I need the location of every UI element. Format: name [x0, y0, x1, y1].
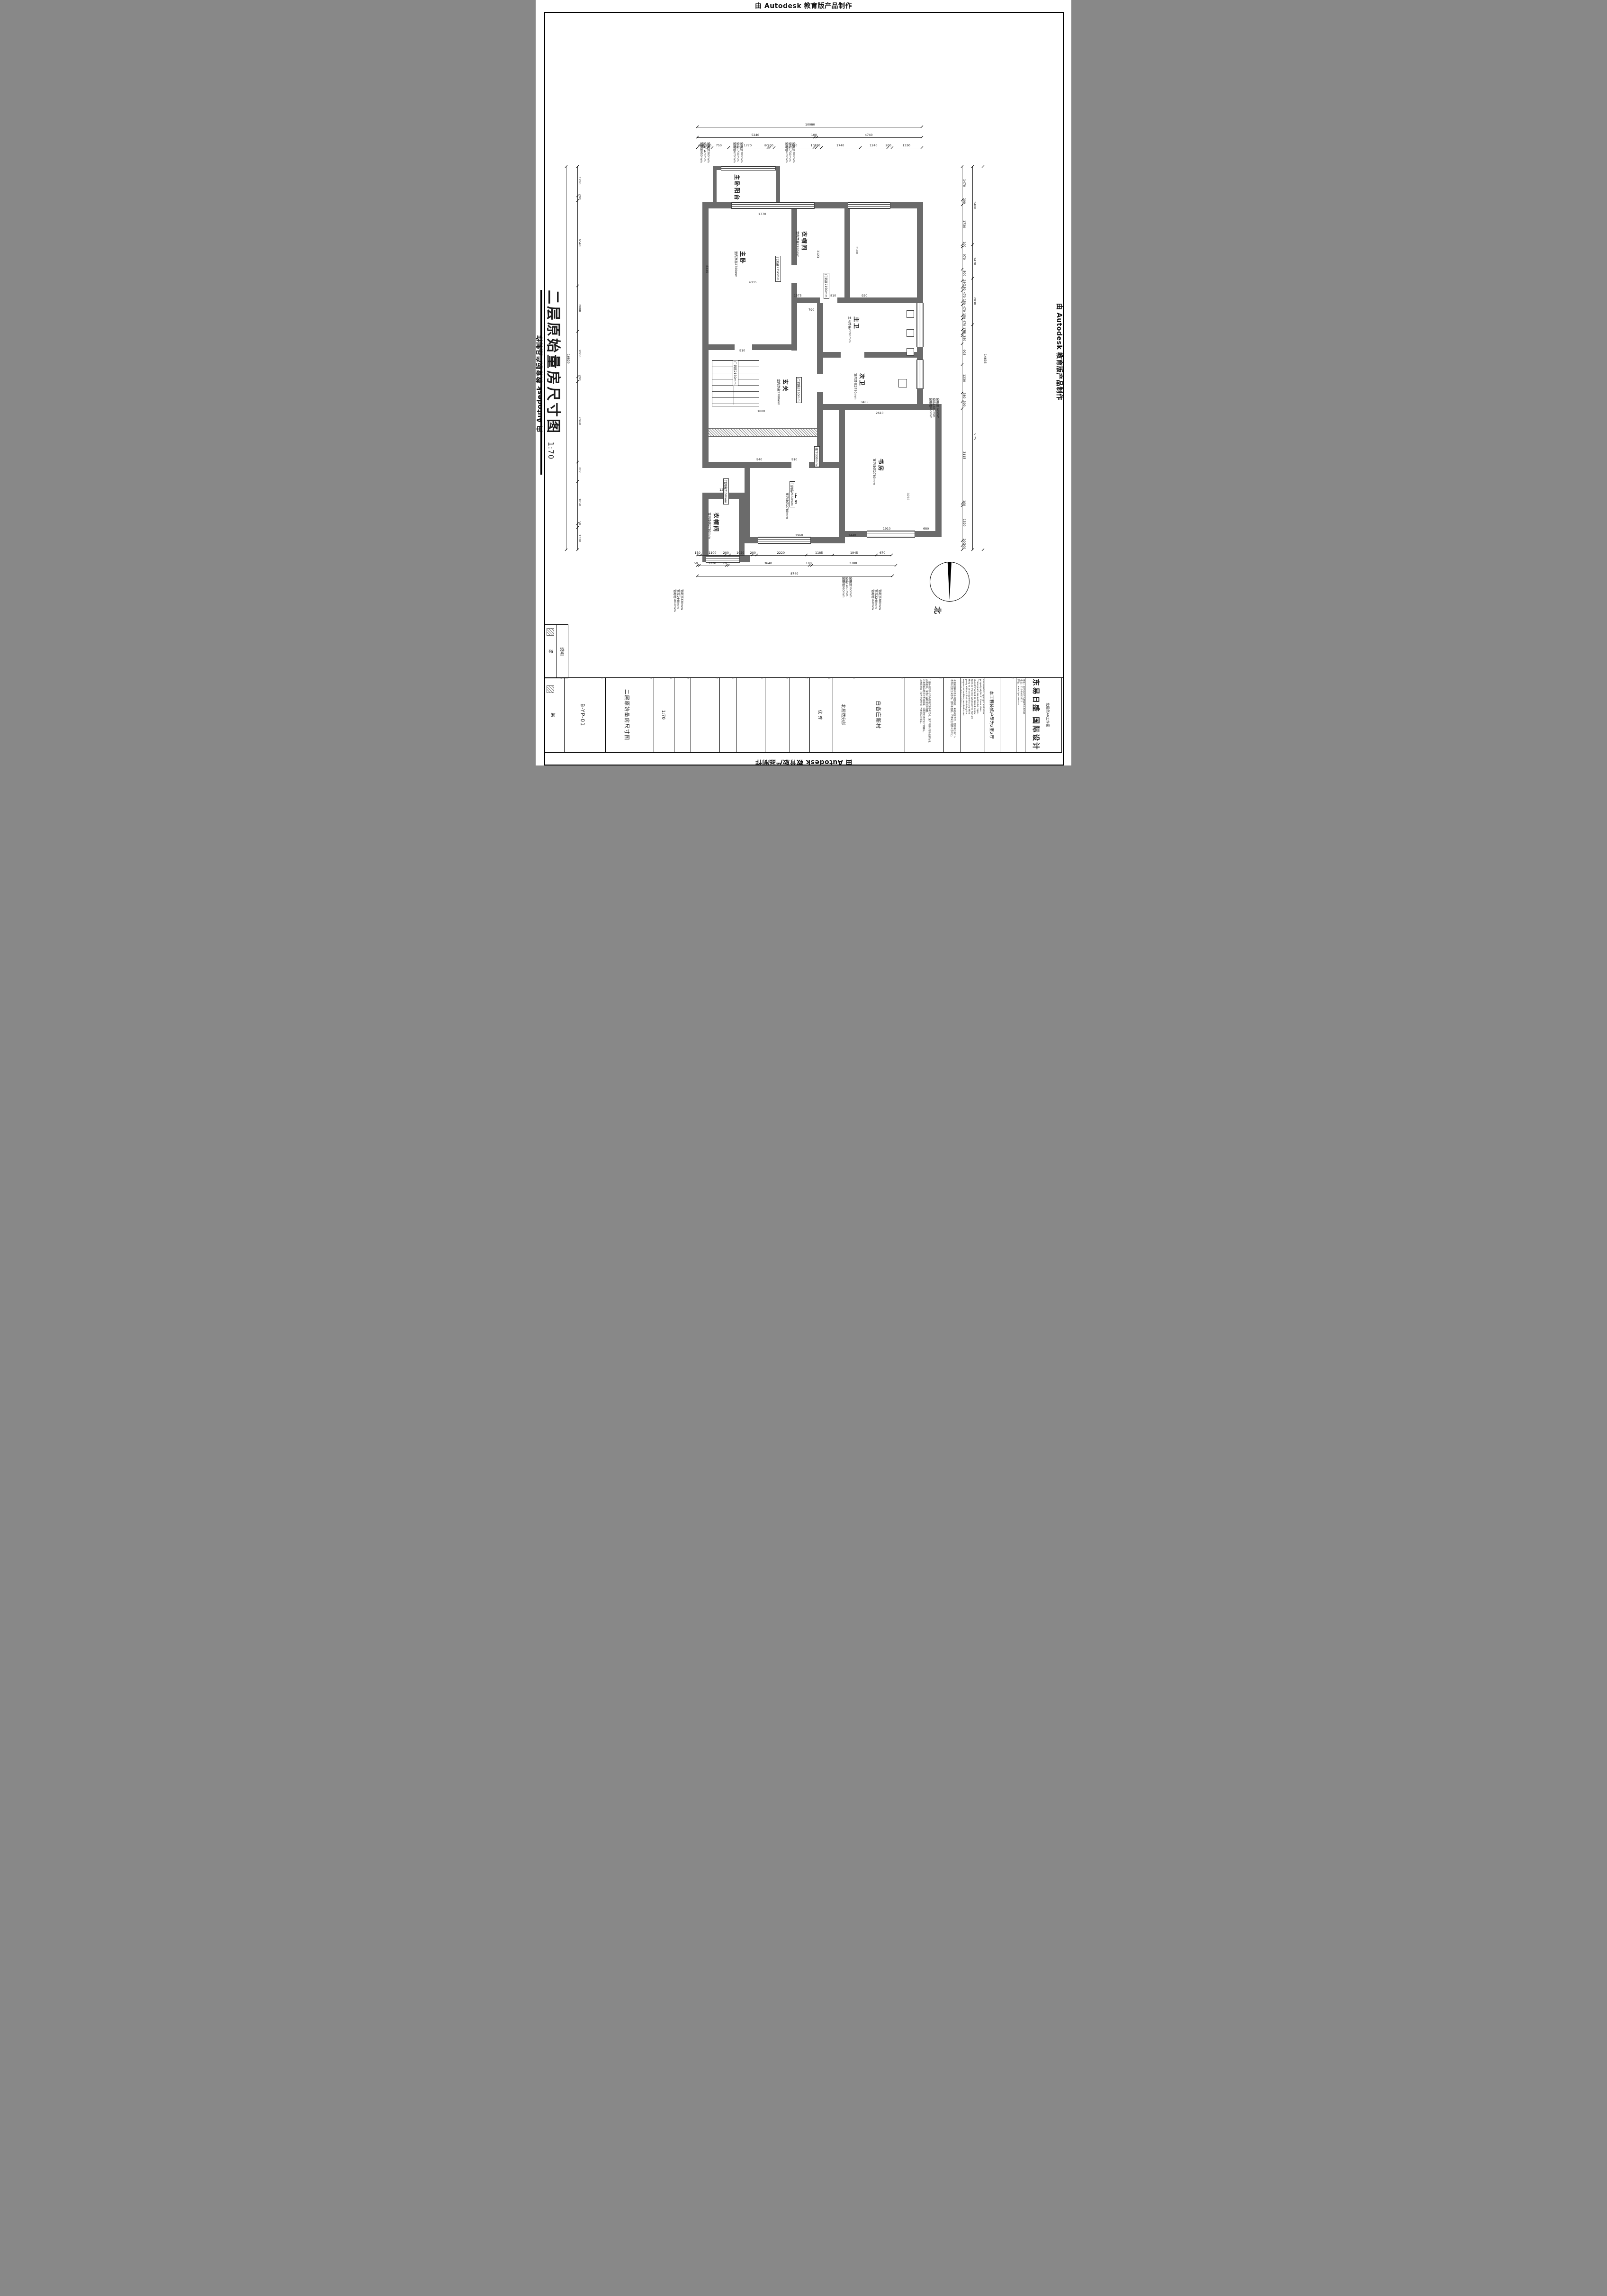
- legend-beam-label: 梁: [548, 649, 554, 653]
- beam-hatch: [709, 429, 817, 436]
- dim-label: 6540: [578, 239, 582, 247]
- title-block: 图例:梁DRAWING NO: 图纸编号:B-YP-01DRAWN TITLE:…: [544, 677, 1062, 753]
- room-label: 衣帽间室内净高2780mm: [708, 513, 721, 539]
- interior-dimension: 940: [756, 458, 762, 461]
- titleblock-cell: Dongyirisheng Expressly reserves itscomm…: [961, 677, 986, 752]
- room-label: 玄关室内净高2780mm: [777, 379, 790, 405]
- wall: [702, 202, 709, 468]
- window-annotation-line: 窗距顶360mm: [849, 577, 853, 597]
- dim-label: 4740: [865, 133, 873, 137]
- dim-label: 200: [706, 144, 711, 147]
- window-icon: [732, 202, 814, 208]
- cell-label: 注意事项:: [939, 677, 943, 679]
- dimension-chain: 8740: [697, 576, 892, 576]
- window-annotation-line: 窗高1440mm: [932, 398, 936, 418]
- cell-text-block: 地址：北京北四环东路居然之家大厦电话：010-84643215网址：www.dy…: [1016, 679, 1025, 750]
- dim-label: 380: [962, 393, 966, 398]
- dim-label: 8740: [790, 572, 799, 576]
- window-annotation: 窗距顶360mm窗高1460mm窗距地960mm: [842, 577, 853, 597]
- cell-text-block: Dongyirisheng Expressly reserves itscomm…: [961, 679, 986, 750]
- dim-label: 16820: [566, 354, 570, 364]
- dim-label: 230: [815, 144, 820, 147]
- titleblock-cell: CONSUMES BY SIGN: 客户签字:: [765, 677, 790, 752]
- dim-label: 1470: [962, 179, 966, 187]
- fixture-icon: [907, 329, 914, 337]
- dim-label: 200: [886, 144, 891, 147]
- watermark-top: 由 Autodesk 教育版产品制作: [755, 1, 852, 10]
- dim-label: 200: [723, 551, 729, 555]
- legend-notes-cell: 说明: [557, 625, 568, 678]
- cell-value: 白各庄新村: [875, 701, 882, 729]
- titleblock-cell: DRAWING NO: 图纸编号:B-YP-01: [565, 677, 606, 752]
- dim-label: 3115: [962, 451, 966, 459]
- dim-label: 1280: [578, 177, 582, 185]
- room-name: 主卫: [853, 316, 860, 330]
- cell-value: 二层原始量房尺寸图: [623, 689, 631, 740]
- dim-label: 1320: [578, 534, 582, 542]
- room-name: 衣帽间: [801, 231, 808, 251]
- room-name: 主卧阳台: [734, 174, 740, 201]
- text-line: property rights in these plans.: [979, 679, 981, 750]
- dim-label: 350: [962, 335, 966, 341]
- titleblock-cell: PROJECT NO: 工程编号:: [1000, 677, 1016, 752]
- dim-label: 1470: [973, 257, 977, 265]
- dimension-chain: 52401004740: [697, 137, 922, 138]
- cell-label: CONSUMES BY SIGN: 客户签字:: [785, 677, 789, 679]
- legend-notes-label: 说明: [559, 647, 566, 656]
- dimension-chain: 10080: [697, 127, 922, 127]
- window-annotation-line: 窗距顶380mm: [740, 142, 744, 162]
- dim-label: 10080: [805, 123, 815, 126]
- titleblock-cell: 本图纸版权归东易日盛所有，未经书面许可，任何单位和个人不得以任何方式修改、复制本…: [944, 677, 961, 752]
- dimension-chain: 128020065402000200020069608501850501320: [577, 166, 578, 549]
- window-icon: [721, 166, 775, 170]
- window-icon: [917, 360, 923, 388]
- fixture-icon: [907, 348, 914, 356]
- dimension-chain: 16820: [566, 166, 566, 549]
- room-name: 主卧: [739, 251, 746, 264]
- dim-label: 1740: [836, 144, 844, 147]
- text-line: 本图纸版权归东易日盛所有，未经书面许可，任何单位和个人: [952, 679, 955, 750]
- window-annotation-line: 窗距地160mm: [871, 589, 875, 610]
- dim-label: 460: [698, 144, 704, 147]
- dim-label: 3400: [973, 201, 977, 209]
- interior-dimension: 1575: [794, 294, 802, 297]
- titleblock-cell: SERVICE OF DEPARTMENT: 所属分部:北居然分部: [833, 677, 858, 752]
- dim-label: 2000: [578, 304, 582, 312]
- text-line: These plans are not to be repro-: [976, 679, 979, 750]
- wall: [713, 166, 717, 206]
- text-line: 地址：北京北四环东路居然之家大厦: [1022, 679, 1025, 750]
- cell-label: DATE 日期:: [731, 677, 736, 679]
- text-line: party without first obtaining the: [964, 679, 967, 750]
- interior-dimension: 3123: [816, 250, 820, 258]
- dim-label: 1230: [962, 374, 966, 382]
- text-line: 3.图纸会审（含各设计专业）合格后方可施工。: [919, 679, 922, 750]
- text-line: 网址：www.dyrs.com.cn: [1016, 679, 1019, 750]
- room-label: 衣帽间室内净高2780mm: [796, 231, 809, 257]
- wall: [817, 404, 942, 410]
- cell-value: B-YP-01: [580, 703, 586, 726]
- fixture-icon: [907, 310, 914, 318]
- wall: [817, 303, 823, 374]
- beam-hatch-swatch: [547, 686, 554, 693]
- wall: [791, 283, 797, 351]
- dim-label: 670: [880, 551, 885, 555]
- legend-beam-cell: 梁: [545, 625, 557, 678]
- dim-label: 150: [695, 551, 700, 555]
- cell-label: DRAWING NO: 图纸编号:: [601, 677, 605, 679]
- cell-value: 本工程装修户型为2室2厅: [989, 691, 995, 738]
- window-annotation: 窗距顶380mm窗高1730mm窗距地670mm: [733, 142, 744, 162]
- window-annotation-line: 窗距地670mm: [785, 142, 789, 162]
- window-annotation-line: 窗高1730mm: [736, 142, 740, 162]
- window-annotation: 窗距顶380mm窗高2240mm窗距地160mm: [871, 589, 882, 610]
- window-icon: [758, 537, 810, 543]
- dim-label: 200: [768, 144, 773, 147]
- cell-value: 优 秀: [817, 710, 823, 720]
- dim-label: 1100: [709, 551, 717, 555]
- company-name: 东易日盛 国际设计: [1031, 679, 1041, 751]
- legend-box: 梁 说明: [545, 624, 568, 678]
- dimension-chain: 1470200173010097050028015047015047015047…: [962, 166, 962, 549]
- titleblock-cell: DATE 日期:: [720, 677, 736, 752]
- dim-label: 50: [578, 521, 582, 525]
- dim-label: 50: [694, 561, 698, 565]
- drawing-scale: 1:70: [547, 441, 555, 459]
- room-label: 主卧阳台: [733, 174, 742, 201]
- interior-dimension: 2610: [876, 411, 884, 415]
- text-line: form or manner whatsoever. Nor are: [970, 679, 973, 750]
- titleblock-cell: APPROVED BY SIGN: 审定人签字:: [691, 677, 720, 752]
- window-icon: [917, 303, 923, 347]
- room-label: 主卫室内净高2780mm: [848, 316, 862, 342]
- text-line: expressed written permission and: [961, 679, 964, 750]
- interior-dimension: 1440: [848, 533, 856, 537]
- titleblock-cell: LEVEL OF DESIGNER 设计师级别:优 秀: [810, 677, 833, 752]
- cad-sheet: 由 Autodesk 教育版产品制作 由 Autodesk 教育版产品制作 由 …: [536, 0, 1071, 765]
- room-label: 次卫室内净高2780mm: [853, 373, 867, 399]
- window-annotation-line: 窗距地950mm: [929, 398, 933, 418]
- dim-label: 470: [962, 320, 966, 326]
- dim-label: 1185: [815, 551, 823, 555]
- cell-label: DATE 日期:: [686, 677, 690, 679]
- interior-dimension: 910: [791, 458, 797, 461]
- dim-label: 5240: [752, 133, 760, 137]
- room-label: 书房室内净高2780mm: [872, 459, 886, 485]
- titleblock-cell: DRAWN TITLE: 图纸名称:二层原始量房尺寸图: [606, 677, 654, 752]
- dim-label: 750: [716, 144, 722, 147]
- dim-label: 1770: [744, 144, 752, 147]
- dim-label: 1945: [850, 551, 858, 555]
- door-height-annotation: 门洞高2150mm: [775, 256, 781, 282]
- dim-label: 2220: [777, 551, 785, 555]
- room-height-note: 室内净高2780mm: [777, 379, 781, 405]
- door-height-annotation: 门洞高2150mm: [796, 377, 802, 403]
- interior-dimension: 1960: [795, 533, 803, 537]
- beam-height-annotation: 梁下330mm: [814, 446, 820, 467]
- window-icon: [848, 202, 890, 208]
- wall: [791, 297, 820, 303]
- window-icon: [867, 531, 915, 537]
- cell-label: APPROVED BY SIGN: 审定人签字:: [715, 677, 719, 679]
- drawing-title: 二层原始量房尺寸图 1:70: [540, 290, 565, 475]
- cell-label: DRAWN BY: 制图人:: [805, 677, 809, 679]
- dim-label: 3780: [849, 561, 857, 565]
- titleblock-cell: DRAWN BY: 制图人:: [790, 677, 810, 752]
- window-annotation-line: 窗高1440mm: [676, 589, 680, 612]
- dim-label: 100: [811, 133, 817, 137]
- window-annotation: 窗距顶390mm窗高1440mm窗距地950mm: [929, 398, 940, 418]
- dim-label: 1240: [870, 144, 878, 147]
- dim-label: 500: [962, 270, 966, 276]
- room-height-note: 室内净高2780mm: [708, 513, 712, 539]
- dim-label: 470: [962, 306, 966, 312]
- dimension-chain: 3400147020305.75: [972, 166, 973, 549]
- titleblock-cell: DATE 日期:: [674, 677, 691, 752]
- text-line: duced/changed or copied in any: [973, 679, 976, 750]
- text-line: 电话：010-84643215: [1019, 679, 1022, 750]
- window-annotation-line: 窗距地670mm: [733, 142, 736, 162]
- company-studio: 北居然A6工作室: [1045, 702, 1050, 727]
- beam-hatch-swatch: [547, 629, 554, 635]
- window-annotation: 窗距顶330mm窗高1440mm窗距地1010mm: [673, 589, 684, 612]
- wall: [745, 468, 750, 543]
- room-height-note: 室内净高2780mm: [853, 373, 858, 399]
- door-height-annotation: 门洞高2150mm: [723, 478, 729, 504]
- wall: [776, 166, 780, 206]
- wall: [702, 462, 791, 468]
- north-label: 北: [933, 606, 944, 614]
- titleblock-cell: 本工程装修户型为2室2厅: [985, 677, 1000, 752]
- fixture-icon: [898, 379, 907, 387]
- wall: [752, 344, 797, 350]
- window-annotation-line: 窗高1460mm: [845, 577, 849, 597]
- interior-dimension: 4335: [749, 280, 757, 284]
- interior-dimension: 910: [739, 349, 745, 352]
- dim-label: 1330: [903, 144, 911, 147]
- room-height-note: 室内净高2780mm: [848, 316, 853, 342]
- cell-label: LEVEL OF DESIGNER 设计师级别:: [828, 677, 832, 679]
- dimension-chain: 14635: [983, 166, 983, 549]
- cell-value: 1:70: [661, 710, 665, 720]
- room-label: 主卧室内净高2780mm: [734, 251, 748, 277]
- interior-dimension: 1800: [757, 409, 765, 413]
- drawing-title-text: 二层原始量房尺寸图: [545, 290, 561, 435]
- dim-label: 5.75: [973, 433, 977, 440]
- titleblock-cell: 东易日盛 国际设计北居然A6工作室: [1025, 677, 1062, 752]
- dim-label: 2030: [973, 297, 977, 305]
- window-annotation-line: 窗距地960mm: [842, 577, 845, 597]
- cell-value: 北居然分部: [841, 704, 847, 725]
- dim-label: 200: [750, 551, 756, 555]
- window-annotation-line: 窗距顶330mm: [680, 589, 684, 612]
- dim-label: 1850: [578, 498, 582, 506]
- titleblock-cell: 图例:梁: [544, 677, 565, 752]
- dimension-chain: 5012207036401003780: [697, 566, 896, 566]
- sheet-border: [544, 12, 1064, 765]
- window-annotation-line: 窗距顶380mm: [878, 589, 882, 610]
- dim-label: 70: [723, 561, 727, 565]
- cell-value: 梁: [550, 712, 556, 717]
- room-height-note: 室内净高2780mm: [796, 231, 800, 257]
- dim-label: 970: [962, 254, 966, 260]
- interior-dimension: 920: [862, 294, 867, 297]
- dim-label: 2000: [578, 350, 582, 358]
- text-line: 1.图中所示尺寸均为现场实测参考尺寸，施工时请以现场复核为准，: [927, 679, 930, 750]
- cell-label: PROJECT NO: 工程编号:: [1011, 677, 1015, 679]
- wall: [839, 410, 845, 543]
- interior-dimension: 1770: [758, 212, 766, 216]
- dim-label: 850: [578, 468, 582, 473]
- door-height-annotation: 门洞高2150mm: [733, 360, 738, 386]
- cell-label: 图例:: [559, 677, 564, 679]
- room-height-note: 室内净高2780mm: [734, 251, 739, 277]
- interior-dimension: 8335: [705, 265, 709, 273]
- dim-label: 6960: [578, 417, 582, 425]
- room-name: 玄关: [782, 379, 789, 392]
- dim-label: 300: [962, 401, 966, 406]
- dim-label: 470: [962, 292, 966, 297]
- interior-dimension: 3405: [861, 400, 869, 404]
- dim-label: 1020: [736, 551, 745, 555]
- window-annotation-line: 窗距地1010mm: [673, 589, 677, 612]
- text-line: 不得以任何方式修改、复制本图纸，不得向任何第三方转让。: [950, 679, 952, 750]
- interior-dimension: 810: [830, 294, 836, 297]
- cell-label: SERVICE OF DEPARTMENT: 所属分部:: [852, 677, 856, 679]
- dim-label: 3640: [764, 561, 772, 565]
- door-height-annotation: 门洞高2150mm: [824, 273, 829, 299]
- dim-label: 100: [806, 561, 812, 565]
- cell-label: DESIGN BY SIGN: 设计师签字:: [760, 677, 764, 679]
- text-line: 2.本图纸未经许可不得涂改，如有变化须经设计师确认。: [922, 679, 925, 750]
- room-name: 次卫: [859, 373, 865, 387]
- cell-text-block: 1.图中所示尺寸均为现场实测参考尺寸，施工时请以现场复核为准，如有差异，请及时通…: [919, 679, 930, 750]
- interior-dimension: 1910: [883, 527, 891, 531]
- cell-label: SCALE 比例:: [669, 677, 673, 679]
- wall: [837, 297, 923, 303]
- titleblock-cell: 地址：北京北四环东路居然之家大厦电话：010-84643215网址：www.dy…: [1016, 677, 1025, 752]
- interior-dimension: 790: [808, 308, 814, 312]
- interior-dimension: 3500: [855, 246, 859, 254]
- dim-label: 80: [962, 330, 966, 334]
- dim-label: 1730: [962, 220, 966, 228]
- dim-label: 903: [962, 350, 966, 355]
- interior-dimension: 680: [923, 527, 929, 531]
- dim-label: 1320: [962, 519, 966, 527]
- room-name: 衣帽间: [713, 513, 719, 532]
- dimension-chain: 15011002001020200222011851945670: [697, 555, 891, 556]
- wall: [844, 208, 850, 297]
- wall: [935, 404, 942, 537]
- door-height-annotation: 门洞高2150mm: [790, 481, 795, 507]
- interior-dimension: 3785: [906, 493, 910, 501]
- window-annotation-line: 窗距顶390mm: [936, 398, 940, 418]
- dim-label: 14635: [983, 354, 987, 364]
- titleblock-cell: SCALE 比例:1:70: [654, 677, 674, 752]
- titleblock-cell: 注意事项:1.图中所示尺寸均为现场实测参考尺寸，施工时请以现场复核为准，如有差异…: [905, 677, 944, 752]
- room-name: 书房: [878, 459, 884, 472]
- cell-label: NAME OF PROJECT: 工程名称:: [900, 677, 904, 679]
- cell-text-block: 本图纸版权归东易日盛所有，未经书面许可，任何单位和个人不得以任何方式修改、复制本…: [950, 679, 955, 750]
- titleblock-cell: DESIGN BY SIGN: 设计师签字:: [736, 677, 765, 752]
- window-annotation-line: 窗高2240mm: [874, 589, 878, 610]
- dim-label: 1220: [709, 561, 717, 565]
- wall: [817, 352, 841, 358]
- dimension-chain: 4602007501770802001780100230174012402001…: [697, 148, 922, 148]
- titleblock-cell: NAME OF PROJECT: 工程名称:白各庄新村: [857, 677, 905, 752]
- dim-label: 1780: [790, 144, 798, 147]
- wall: [702, 344, 735, 350]
- cell-label: DRAWN TITLE: 图纸名称:: [649, 677, 653, 679]
- room-height-note: 室内净高2780mm: [872, 459, 877, 485]
- text-line: 如有差异，请及时通知设计师调整。: [925, 679, 927, 750]
